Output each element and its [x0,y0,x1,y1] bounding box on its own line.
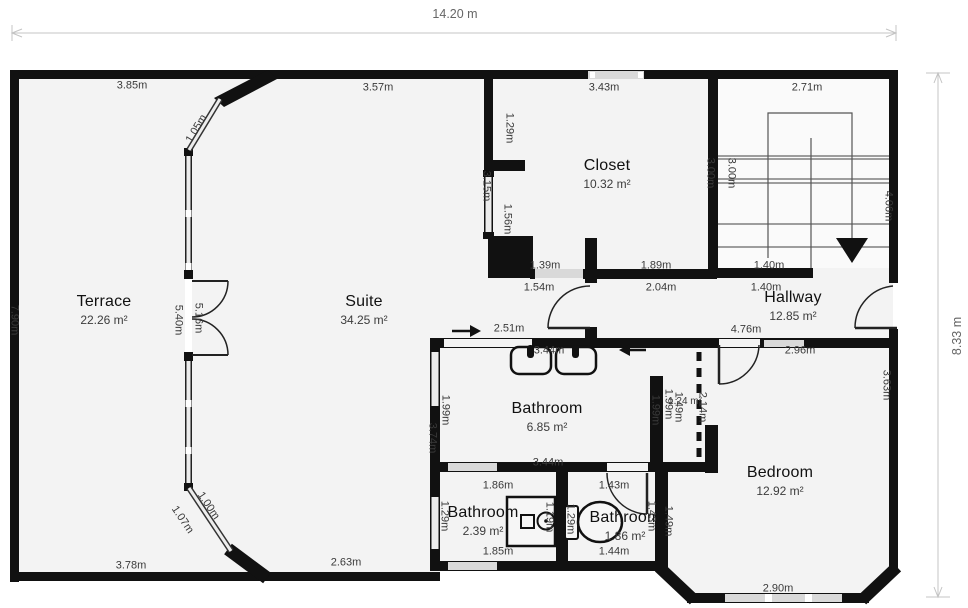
dimension-label: 14.20 m [432,8,477,21]
room-area: 22.26 m² [77,313,132,327]
dimension-label: 2.96m [785,346,816,357]
room-name: Bathroom [512,400,583,418]
floorplan-page: Terrace 22.26 m² Suite 34.25 m² Closet 1… [0,0,968,608]
room-area: 12.92 m² [747,484,813,498]
room-name: Bedroom [747,464,813,482]
dimension-label: 4.76m [731,325,762,336]
dimension-label: 1.19m [544,502,555,533]
dimension-label: 3.44m [533,458,564,469]
dimension-label: 1.43m [599,481,630,492]
dimension-label: 5.40m [173,305,184,336]
dimension-label: 1.29m [565,504,576,535]
dimension-label: 1.40m [754,261,785,272]
dimension-label: 1.54m [524,283,555,294]
room-area: 2.39 m² [448,524,519,538]
dimension-label: 1.40m [751,283,782,294]
room-label: Bathroom 6.85 m² [512,400,583,434]
dimension-label: 2.51m [494,324,525,335]
dimension-label: 3.57m [363,83,394,94]
dimension-label: 7.90m [9,305,20,336]
dimension-label: 1.39m [530,261,561,272]
room-label: Closet 10.32 m² [583,157,630,191]
room-area: 34.25 m² [340,313,387,327]
dimension-label: 1.29m [439,501,450,532]
dimension-label: 8.33 m [951,317,964,355]
room-label: Bedroom 12.92 m² [747,464,813,498]
dimension-label: 3.85m [117,81,148,92]
shaft-block [488,236,533,278]
dimension-label: 5.16m [193,303,204,334]
dimension-label: 3.00m [705,158,716,189]
dimension-label: 1.89m [641,261,672,272]
room-label: Suite 34.25 m² [340,293,387,327]
dimension-label: 1.85m [483,547,514,558]
room-label: Hallway 12.85 m² [764,289,821,323]
dimension-label: 3.44m [534,346,565,357]
dimension-label: 3.15m [481,171,492,202]
room-area: 6.85 m² [512,420,583,434]
dimension-label: 2.04m [646,283,677,294]
room-area: 12.85 m² [764,309,821,323]
room-label: Terrace 22.26 m² [77,293,132,327]
room-name: Suite [340,293,387,311]
dimension-label: 3.43m [589,83,620,94]
dimension-label: 1.49m [663,506,674,537]
dimension-label: 1.29m [504,113,515,144]
room-area: 10.32 m² [583,177,630,191]
dimension-label: 3.78m [116,561,147,572]
dimension-label: 1.99m [650,395,661,426]
room-name: Closet [583,157,630,175]
dimension-label: 1.43m [646,501,657,532]
room-name: Bathroom [448,504,519,522]
dimension-label: 1.99m [440,395,451,426]
dimension-label: 1.56m [502,204,513,235]
dimension-label: 3.00m [726,158,737,189]
dimension-label: 3.63m [881,370,892,401]
dimension-label: 2.90m [763,584,794,595]
dimension-label: 1.44m [599,547,630,558]
dimension-label: 2.71m [792,83,823,94]
room-label: Bathroom 2.39 m² [448,504,519,538]
dimension-label: 3.74m [427,423,438,454]
dimension-label: 4.06m [883,191,894,222]
dimension-label: 1.86m [483,481,514,492]
room-name: Terrace [77,293,132,311]
dimension-label: 2.63m [331,558,362,569]
dimension-label: 2.14m [697,392,708,423]
